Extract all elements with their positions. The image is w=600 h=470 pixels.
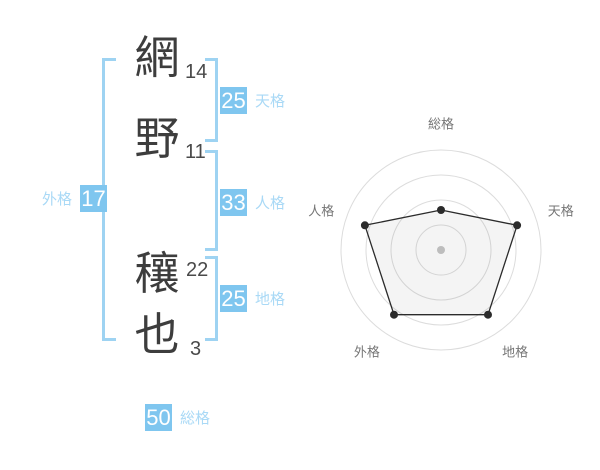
soukaku-badge: 50 [145, 404, 172, 431]
chikaku-row: 25 地格 [220, 285, 285, 312]
stroke-count-4: 3 [190, 339, 201, 359]
radar-vertex-dot [513, 221, 521, 229]
tengaku-label: 天格 [255, 90, 285, 111]
tengaku-row: 25 天格 [220, 87, 285, 114]
radar-vertex-dot [361, 221, 369, 229]
radar-axis-label: 天格 [548, 204, 574, 219]
radar-vertex-dot [390, 311, 398, 319]
radar-vertex-dot [437, 206, 445, 214]
jinkaku-label: 人格 [255, 192, 285, 213]
name-char-2: 野 [130, 116, 184, 162]
name-char-3: 穰 [130, 251, 184, 297]
radar-chart: 総格天格地格外格人格 [291, 100, 591, 400]
chikaku-label: 地格 [255, 288, 285, 309]
radar-axis-label: 人格 [308, 204, 334, 219]
tengaku-badge: 25 [220, 87, 247, 114]
radar-axis-label: 地格 [502, 344, 528, 359]
jinkaku-row: 33 人格 [220, 189, 285, 216]
gaikaku-badge: 17 [80, 185, 107, 212]
stroke-count-2: 11 [185, 142, 206, 162]
radar-axis-label: 外格 [354, 344, 380, 359]
gaikaku-row: 外格 17 [42, 185, 107, 212]
seimei-handan-panel: 網 野 穰 也 14 11 22 3 25 天格 33 人格 25 地格 外格 … [0, 0, 600, 470]
gaikaku-label: 外格 [42, 188, 72, 209]
chikaku-badge: 25 [220, 285, 247, 312]
name-char-1: 網 [130, 35, 184, 81]
radar-center-dot [437, 246, 445, 254]
tengaku-bracket [205, 58, 218, 142]
stroke-count-1: 14 [185, 62, 207, 82]
jinkaku-badge: 33 [220, 189, 247, 216]
radar-axis-label: 総格 [428, 117, 454, 132]
radar-vertex-dot [484, 311, 492, 319]
name-char-4: 也 [130, 312, 184, 358]
chikaku-bracket [205, 256, 218, 341]
soukaku-label: 総格 [180, 407, 210, 428]
jinkaku-bracket [205, 150, 218, 251]
soukaku-row: 50 総格 [145, 404, 210, 431]
radar-polygon [365, 210, 517, 315]
